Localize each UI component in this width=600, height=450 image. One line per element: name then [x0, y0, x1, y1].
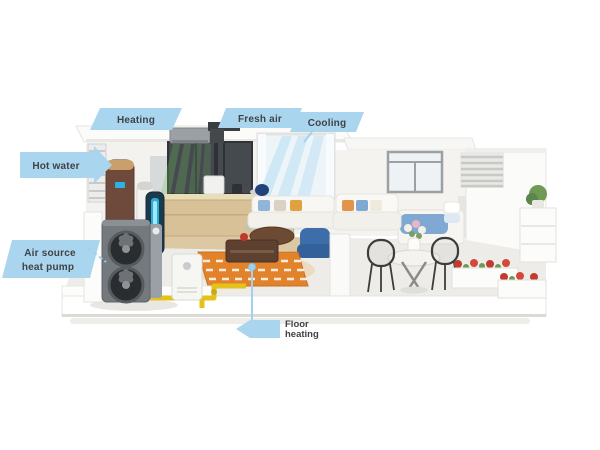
armchair-seat	[297, 244, 333, 258]
fan-top	[109, 232, 143, 266]
callout-fresh-air: Fresh air	[218, 108, 302, 128]
flower	[412, 220, 420, 228]
callout-hot-water-label: Hot water	[32, 161, 79, 172]
callout-heat-pump-line2: heat pump	[22, 262, 74, 273]
callout-cooling-label: Cooling	[308, 118, 347, 129]
coffee-table-shelf	[230, 250, 274, 253]
sofa-seat	[248, 212, 338, 228]
callout-heating: Heating	[90, 108, 182, 130]
duct-drop-pipe	[214, 143, 218, 176]
softener-lid	[137, 182, 153, 190]
indoor-hydro-unit	[172, 254, 202, 300]
sofa-right-pillow-cream	[370, 200, 382, 211]
bedroom-window	[388, 152, 442, 192]
sofa-right-pillow-orange	[342, 200, 354, 211]
hydro-unit-logo	[183, 262, 191, 270]
heat-pump-top-band	[102, 220, 150, 226]
hydro-unit-body	[172, 254, 202, 300]
bed-pillow-white	[444, 202, 460, 213]
sofa-right-seat	[333, 212, 401, 230]
red-flower	[502, 259, 510, 267]
fascia-bottom-edge	[62, 314, 546, 317]
flower	[404, 224, 412, 232]
house-cutaway-illustration: Heating Fresh air Cooling Hot water Air …	[0, 0, 600, 450]
callout-fresh-air-label: Fresh air	[238, 114, 282, 125]
bed-pillow-blue	[444, 214, 460, 223]
louver-vent	[460, 152, 504, 188]
fan-hub	[122, 245, 130, 253]
sofa-right	[333, 194, 401, 230]
cabinet-body	[520, 208, 556, 262]
fan-hub	[122, 281, 130, 289]
flower	[418, 226, 426, 234]
kettle	[232, 184, 242, 194]
duct-elbow	[210, 129, 224, 143]
sofa-pillow-beige	[274, 200, 286, 211]
table-base	[400, 287, 428, 294]
wall-controller	[204, 176, 224, 194]
blue-armchair	[297, 228, 333, 258]
roof-slab-right	[344, 138, 476, 150]
callout-hot-water: Hot water	[20, 146, 112, 184]
chair-back	[368, 240, 394, 266]
table-plant	[240, 233, 248, 241]
heat-pump-outdoor-unit	[102, 220, 162, 302]
sofa-right-pillow-blue	[356, 200, 368, 211]
planter-trough	[498, 280, 546, 298]
flower-leaf	[409, 231, 415, 237]
navy-decor-vase	[255, 184, 269, 196]
red-flower	[516, 272, 524, 280]
callout-heating-label: Heating	[117, 115, 155, 126]
chair-back	[432, 238, 458, 264]
pipe-joint	[211, 289, 217, 295]
fan-bottom	[109, 268, 143, 302]
brand-badge	[153, 228, 160, 235]
erv-grille	[172, 140, 208, 143]
callout-floor-heating-line2: heating	[285, 329, 319, 340]
red-flower	[454, 260, 462, 268]
callout-heat-pump-line1: Air source	[24, 248, 76, 259]
red-flower	[470, 259, 478, 267]
partition-half-wall	[330, 234, 350, 296]
floor-heating-anchor-dot	[249, 264, 256, 271]
curtain-right	[326, 134, 334, 198]
red-flower	[486, 260, 494, 268]
sofa-pillow-blue	[258, 200, 270, 211]
tank-display	[115, 182, 125, 188]
callout-heat-pump: Air source heat pump	[2, 240, 106, 278]
sofa-pillow-orange	[290, 200, 302, 211]
